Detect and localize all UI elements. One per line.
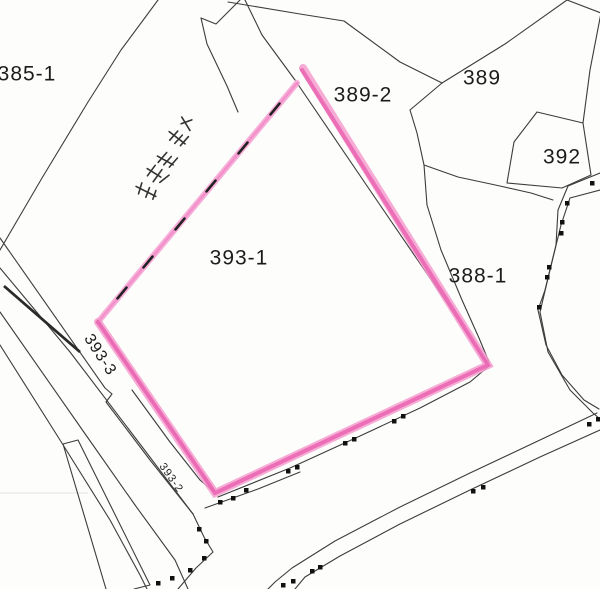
boundary-389-ne <box>442 0 567 83</box>
handwritten-note-icon <box>133 113 201 202</box>
highlight-nw-edge-core <box>98 83 297 322</box>
cadastral-map-canvas: 385-1 389-2 389 392 393-1 388-1 393-3 39… <box>0 0 600 589</box>
parcel-label-392: 392 <box>543 146 581 169</box>
cadastral-map-page: 385-1 389-2 389 392 393-1 388-1 393-3 39… <box>0 0 600 589</box>
boundary-385-1 <box>0 0 158 250</box>
parcel-label-389: 389 <box>463 67 501 90</box>
boundary-top-right <box>567 0 600 123</box>
corridor-line-4 <box>0 345 147 589</box>
survey-dots <box>156 181 600 588</box>
parcel-label-389-2: 389-2 <box>334 84 393 107</box>
parcel-boundaries <box>0 0 600 589</box>
boundary-389-upper <box>228 2 442 83</box>
highlight-outline-393-1 <box>98 68 488 493</box>
parcel-labels: 385-1 389-2 389 392 393-1 388-1 393-3 39… <box>0 63 581 496</box>
highlight-main-edges <box>98 68 488 493</box>
bold-boundary-segment <box>4 286 80 352</box>
road-bottom-lower <box>295 430 600 589</box>
boundary-389-388 <box>424 165 553 200</box>
boundary-notch <box>201 0 240 112</box>
highlight-main-edges-core <box>98 70 488 493</box>
parcel-label-393-1: 393-1 <box>210 247 269 270</box>
road-right-outer <box>538 173 600 409</box>
boundary-389-2-east <box>410 83 442 205</box>
parcel-label-388-1: 388-1 <box>449 265 508 288</box>
road-bottom-upper <box>268 413 597 589</box>
parcel-label-393-2: 393-2 <box>157 461 186 495</box>
parcel-label-385-1: 385-1 <box>0 63 56 86</box>
